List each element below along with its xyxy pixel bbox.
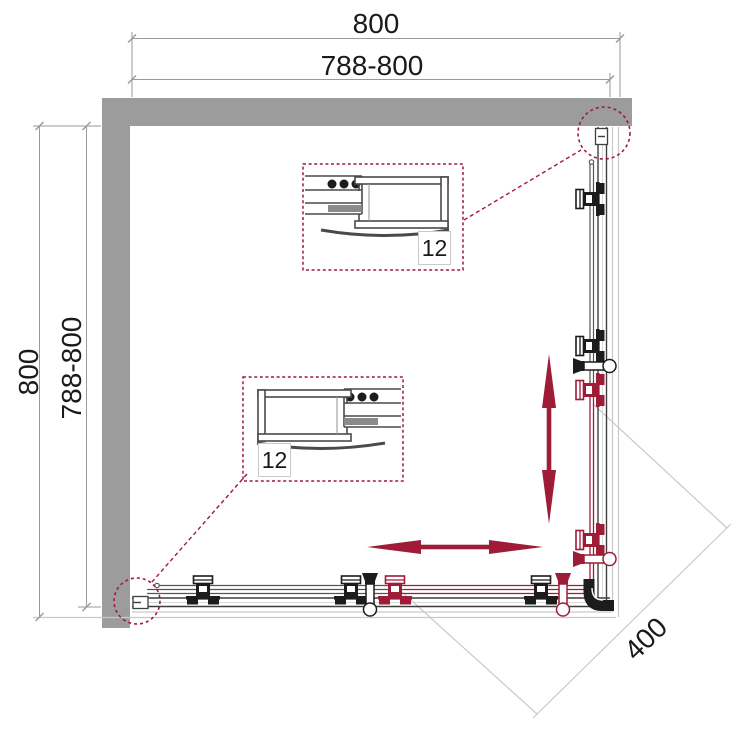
detail-drawing-lower xyxy=(257,389,401,449)
top-wall xyxy=(102,98,632,126)
detail-tag-lower: 12 xyxy=(258,443,291,477)
slide-arrows xyxy=(367,354,556,554)
roller-bracket-highlighted xyxy=(378,576,412,605)
door-knob-highlighted xyxy=(573,551,616,567)
leader-line-upper xyxy=(464,150,581,220)
door-knob xyxy=(362,573,378,616)
roller-bracket xyxy=(334,576,368,605)
detail-drawing-upper xyxy=(305,176,449,236)
dimension-top-overall: 800 xyxy=(340,9,412,39)
diagonal-dimension-lines xyxy=(402,404,731,718)
right-rail-assembly xyxy=(573,127,616,608)
leader-line-lower xyxy=(151,474,247,583)
shower-enclosure-plan: 800 788-800 800 788-800 400 12 12 xyxy=(0,0,750,737)
door-knob xyxy=(573,358,616,374)
dimension-top-range: 788-800 xyxy=(310,51,434,81)
roller-bracket xyxy=(186,576,220,605)
dimension-left-overall: 800 xyxy=(14,336,44,408)
bottom-rail-assembly xyxy=(132,573,610,616)
left-wall xyxy=(102,98,130,628)
detail-tag-upper: 12 xyxy=(418,231,451,265)
roller-bracket xyxy=(524,576,558,605)
door-knob-highlighted xyxy=(555,573,571,616)
dimension-left-range: 788-800 xyxy=(57,306,87,430)
